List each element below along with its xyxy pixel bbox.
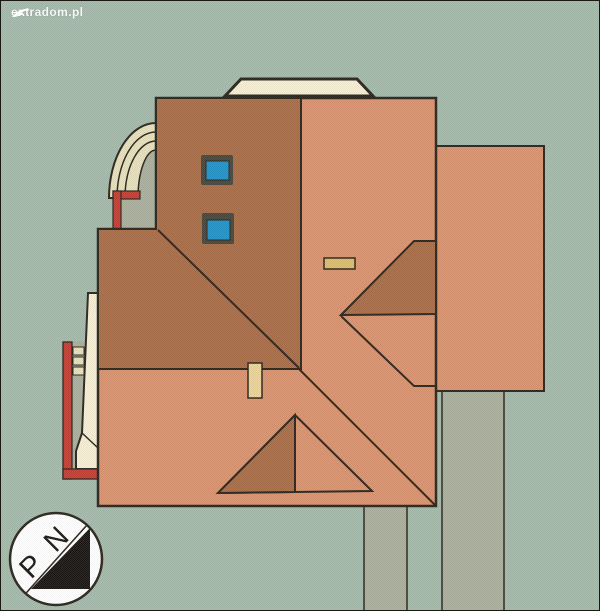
compass-rose: P N bbox=[10, 513, 102, 605]
chimney-vertical bbox=[248, 363, 262, 398]
top-dormer bbox=[225, 79, 373, 96]
path-strip-narrow bbox=[364, 501, 407, 611]
west-bay-step-2 bbox=[73, 357, 84, 365]
arc-bay-red-wall-side bbox=[113, 191, 121, 230]
extradom-watermark: extradom.pl bbox=[11, 5, 83, 19]
skylight-2 bbox=[202, 213, 234, 244]
skylight-1-glass bbox=[206, 161, 229, 180]
skylight-1 bbox=[201, 155, 233, 185]
west-bay-step-3 bbox=[73, 367, 84, 375]
path-strip-wide bbox=[442, 386, 504, 611]
chimney-horizontal bbox=[324, 258, 355, 269]
extradom-logo-icon bbox=[11, 5, 31, 21]
annex-roof bbox=[436, 146, 544, 391]
red-terrace-wall-bottom bbox=[63, 469, 98, 479]
roof-plan-drawing: P N bbox=[1, 1, 600, 611]
red-terrace-wall-side bbox=[63, 342, 72, 479]
house-plan-image: P N extradom.pl bbox=[0, 0, 600, 611]
skylight-2-glass bbox=[207, 220, 230, 240]
west-bay-step-1 bbox=[73, 347, 84, 355]
